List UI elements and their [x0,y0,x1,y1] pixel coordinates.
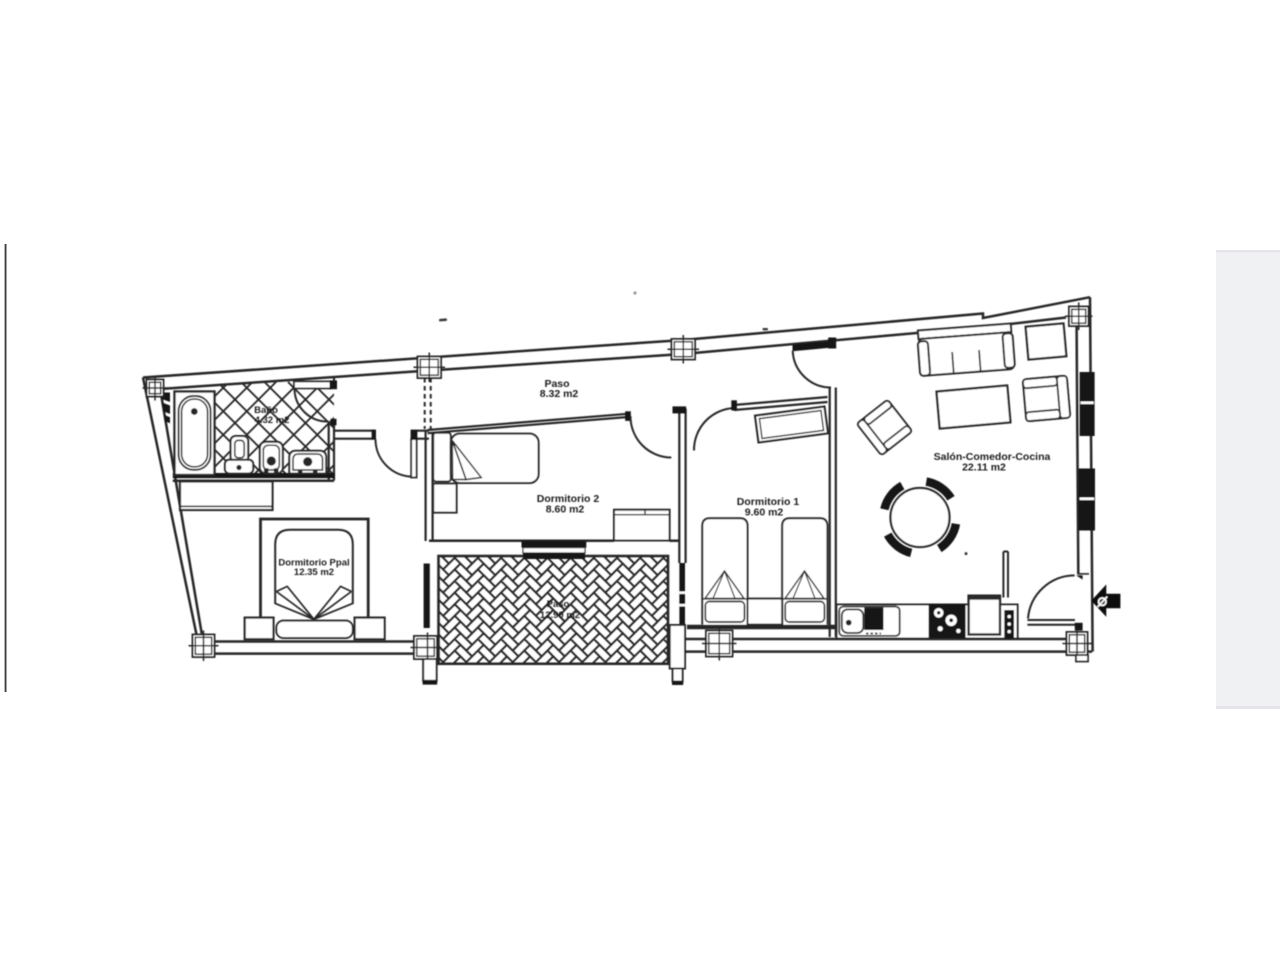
svg-text:8.60 m2: 8.60 m2 [546,504,585,516]
svg-text:4.32 m2: 4.32 m2 [255,415,290,426]
svg-text:22.11 m2: 22.11 m2 [962,462,1006,474]
svg-text:9.60 m2: 9.60 m2 [745,507,784,519]
svg-text:12.90 m2: 12.90 m2 [540,610,580,621]
svg-text:Paso: Paso [547,599,570,610]
svg-text:8.32 m2: 8.32 m2 [540,388,579,400]
svg-text:12.35 m2: 12.35 m2 [294,567,334,578]
